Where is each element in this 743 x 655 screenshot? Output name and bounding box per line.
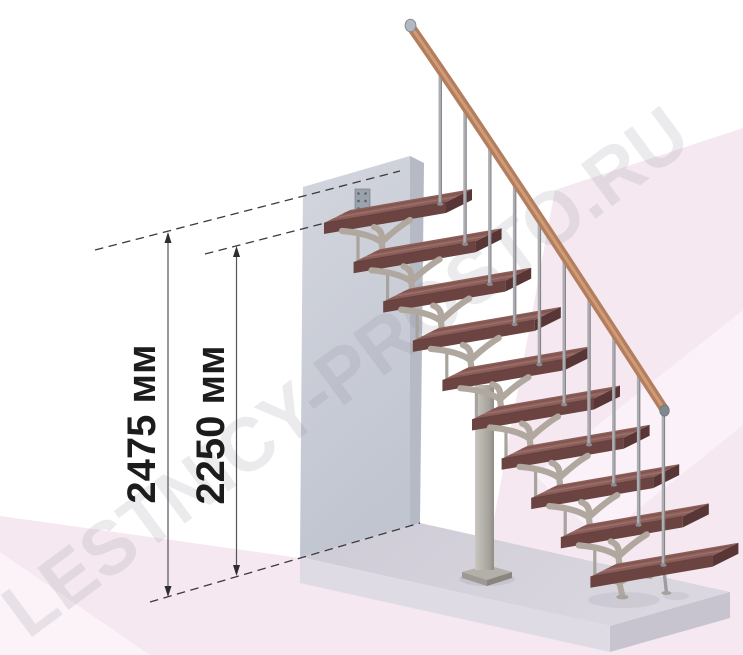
dimension-label-2250: 2250 мм bbox=[189, 345, 233, 504]
scene-svg: LESTNICY-PROSTO.RU2475 мм2250 мм bbox=[0, 0, 743, 655]
handrail-end-cap-top bbox=[405, 19, 416, 31]
handrail-end-cap-bottom bbox=[660, 405, 670, 416]
stair-diagram: 10 ступеней LESTNICY-PROSTO.RU2475 мм225… bbox=[0, 0, 743, 655]
dimension-label-2475: 2475 мм bbox=[120, 344, 164, 503]
